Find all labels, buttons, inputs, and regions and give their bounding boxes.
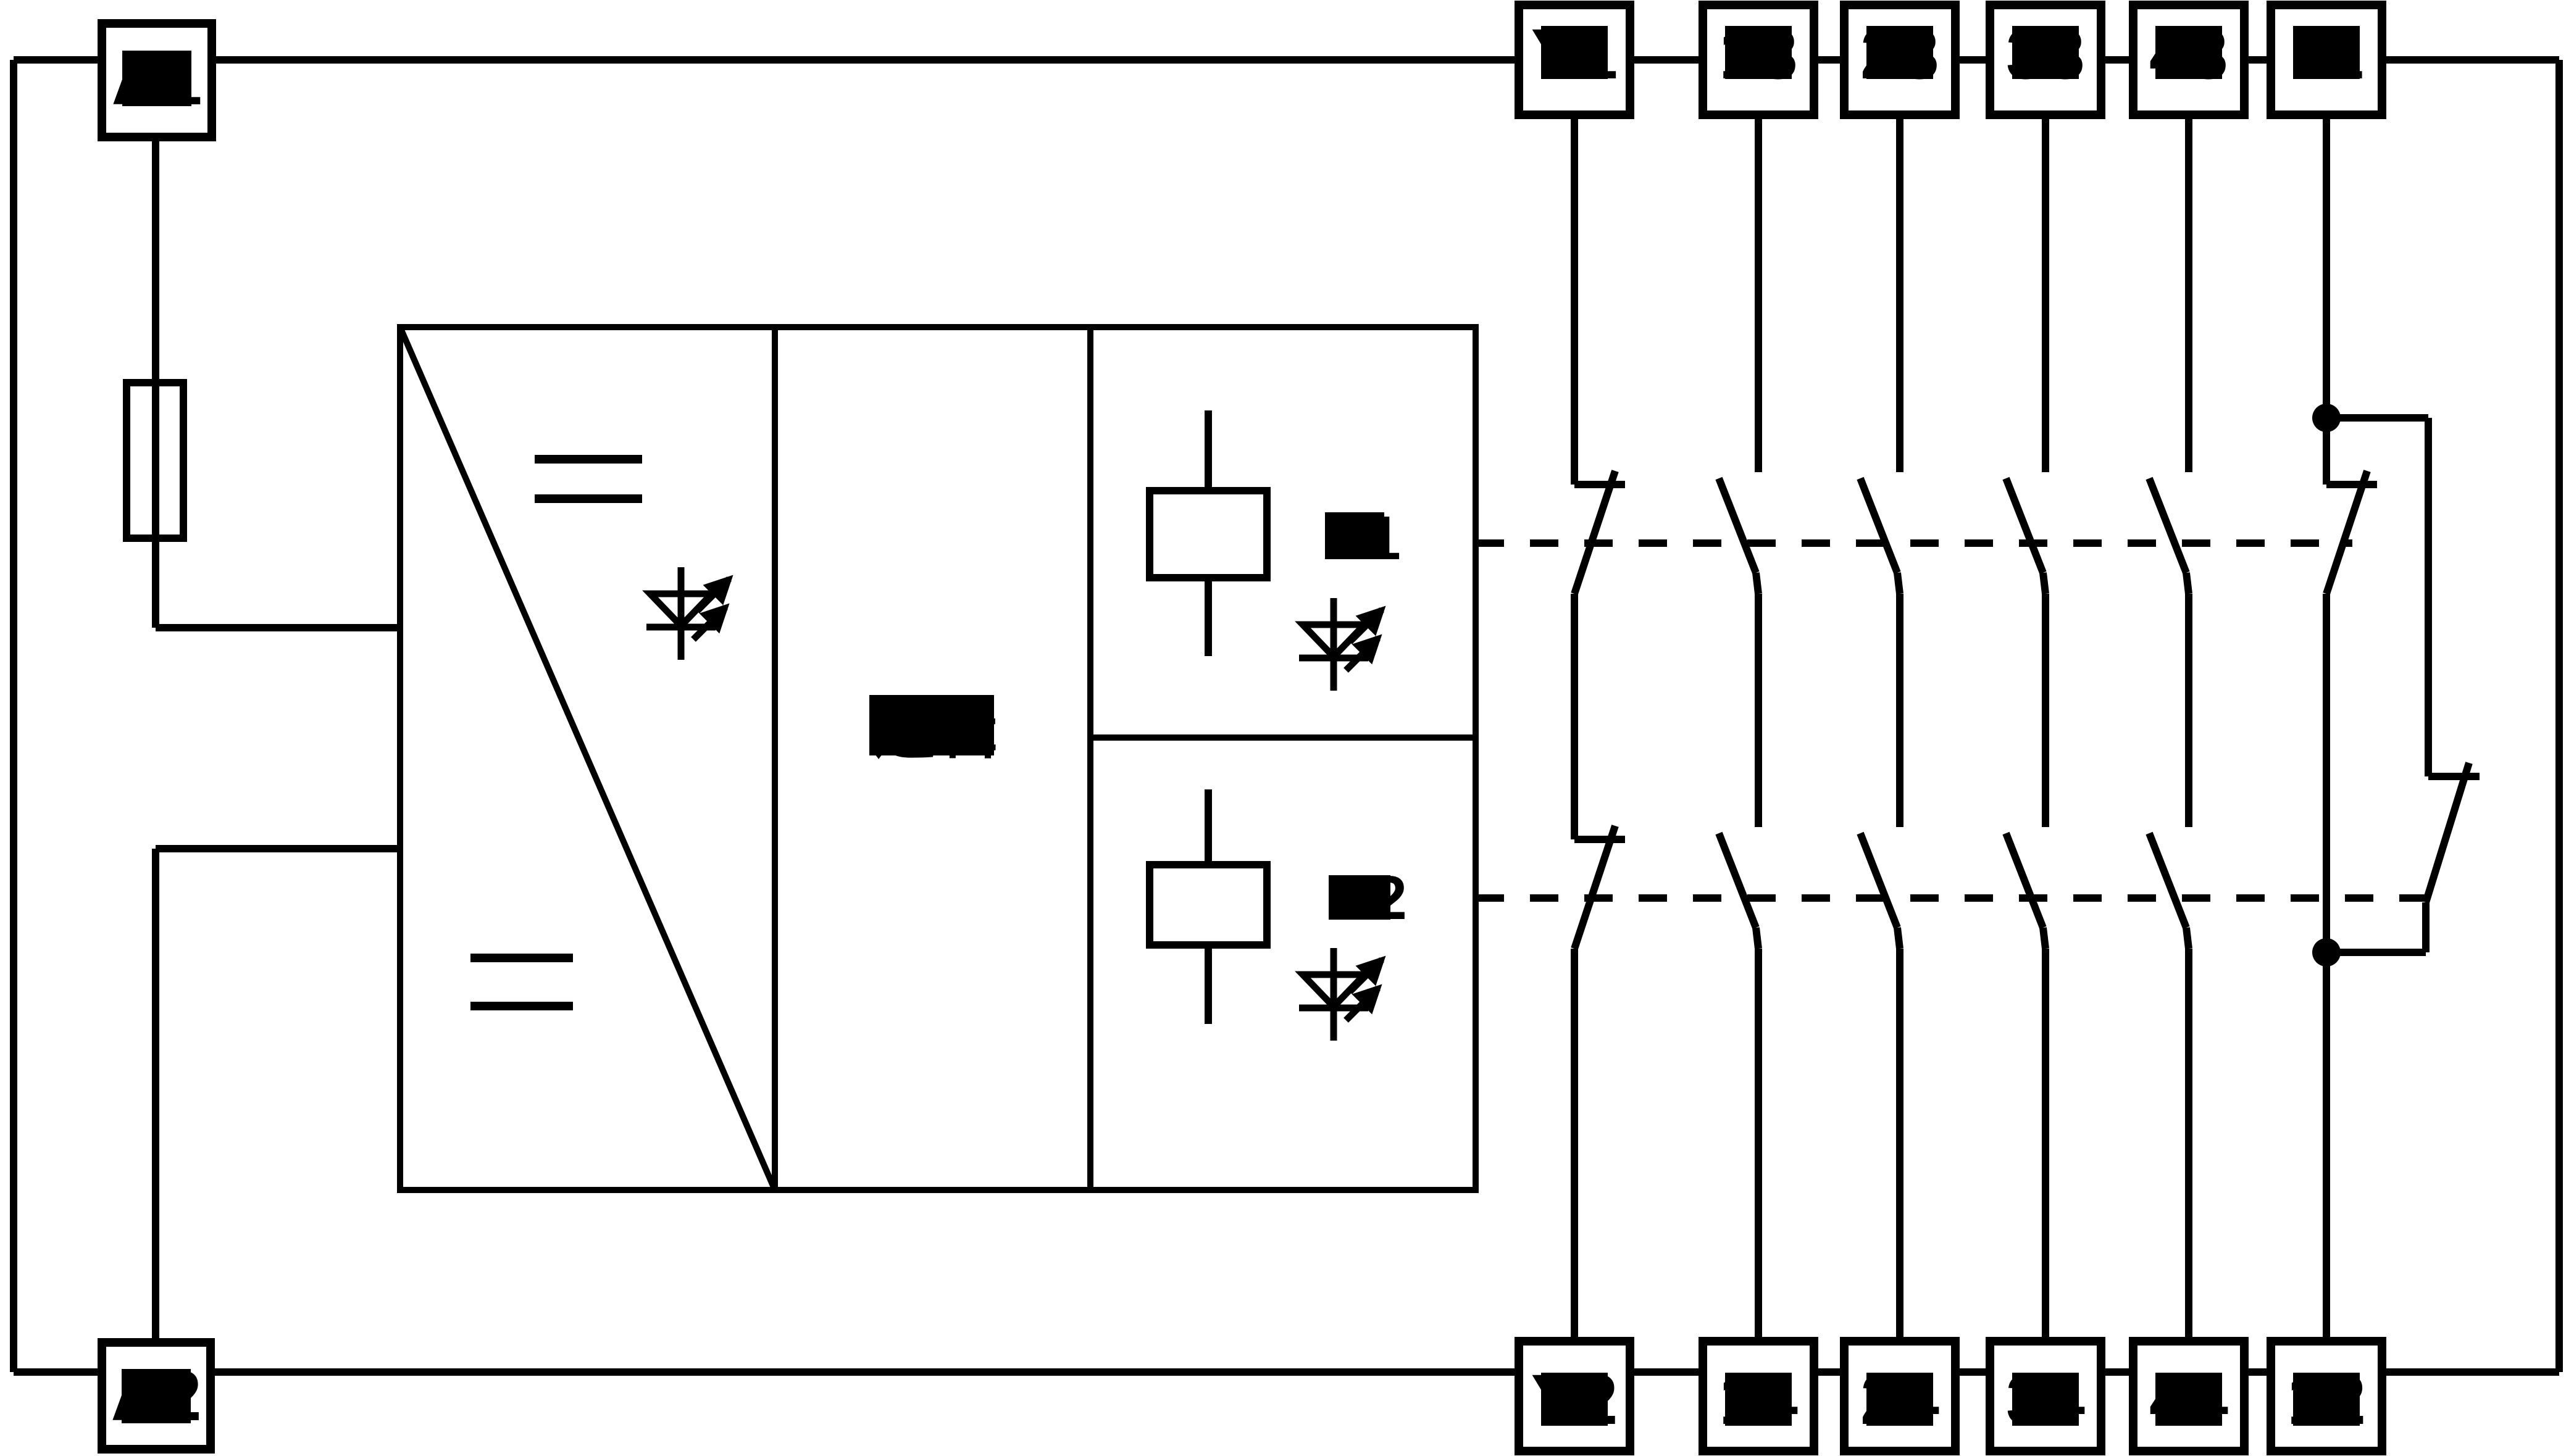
terminal-44-label-cover	[2155, 1373, 2222, 1426]
schematic-stage: A1A2Y11323334311Y21424344412逻辑K1K2	[0, 0, 2574, 1456]
contact-column-6-changeover-line	[2426, 763, 2469, 902]
contact-column-5-line	[2149, 478, 2186, 573]
contact-column-4-line	[2006, 833, 2043, 928]
supply-wiring	[156, 137, 400, 1342]
terminal-y1-label-cover	[1541, 26, 1608, 79]
terminal-14-label-cover	[1725, 1373, 1792, 1426]
terminal-23-label-cover	[1866, 26, 1933, 79]
terminal-a2-label-cover	[122, 1369, 191, 1423]
terminal-33: 33	[1990, 5, 2101, 115]
dc-voltage-symbol-upper	[535, 459, 642, 499]
label-logic-cover	[869, 695, 994, 755]
contact-column-5	[2149, 115, 2189, 1341]
terminal-24-label-cover	[1866, 1373, 1933, 1426]
status-led-supply-icon	[646, 567, 729, 660]
contact-column-1-line	[1574, 471, 1615, 594]
contact-column-4	[2006, 115, 2045, 1341]
terminal-a1-label-cover	[122, 51, 191, 106]
contact-column-6-changeover-line	[2326, 471, 2367, 594]
status-led-k2-icon	[1299, 948, 1382, 1041]
contact-column-2	[1719, 115, 1758, 1341]
contact-column-2-line	[1719, 478, 1756, 573]
contact-column-2-line	[1719, 833, 1756, 928]
contact-column-3	[1860, 115, 1900, 1341]
label-k2-cover	[1329, 875, 1390, 920]
terminal-11-label-cover	[2293, 26, 2360, 79]
contact-column-1-line	[1574, 826, 1615, 949]
terminal-33-label-cover	[2012, 26, 2079, 79]
dc-voltage-symbol-lower	[470, 958, 573, 1006]
terminal-34: 34	[1990, 1341, 2101, 1451]
label-k2: K2	[1328, 863, 1407, 933]
terminal-24: 24	[1844, 1341, 1955, 1451]
relay-k2-coil-box	[1150, 865, 1267, 945]
contact-column-4-line	[2043, 573, 2045, 594]
contact-column-3-line	[1897, 573, 1900, 594]
terminal-43-label-cover	[2155, 26, 2222, 79]
contact-column-4-line	[2006, 478, 2043, 573]
terminal-11: 11	[2271, 5, 2382, 115]
contact-column-1	[1574, 115, 1625, 1341]
terminal-a1: A1	[102, 23, 212, 137]
contact-column-2-line	[1756, 928, 1758, 949]
contact-column-5-line	[2186, 928, 2189, 949]
terminal-13: 13	[1703, 5, 1814, 115]
junction-dot	[2312, 938, 2341, 967]
label-k1-cover	[1325, 512, 1384, 559]
contact-column-3-line	[1860, 478, 1897, 573]
contact-column-3-line	[1897, 928, 1900, 949]
terminal-y1: Y1	[1519, 5, 1630, 115]
terminal-23: 23	[1844, 5, 1955, 115]
relay-k2-coil	[1150, 789, 1267, 1024]
contact-column-5-line	[2186, 573, 2189, 594]
terminal-34-label-cover	[2012, 1373, 2079, 1426]
label-logic: 逻辑	[869, 695, 997, 766]
contact-column-5-line	[2149, 833, 2186, 928]
relay-k1-coil-box	[1150, 491, 1267, 578]
terminal-13-label-cover	[1725, 26, 1792, 79]
relay-k1-coil	[1150, 410, 1267, 656]
terminal-y2: Y2	[1519, 1341, 1630, 1451]
circuit-diagram: A1A2Y11323334311Y21424344412逻辑K1K2	[0, 0, 2574, 1456]
terminal-14: 14	[1703, 1341, 1814, 1451]
module-frame	[14, 60, 2559, 1372]
contact-column-4-line	[2043, 928, 2045, 949]
terminal-a2: A2	[102, 1342, 211, 1449]
status-led-k1-icon	[1299, 598, 1382, 691]
contact-column-6-changeover	[2326, 115, 2480, 1341]
contact-column-3-line	[1860, 833, 1897, 928]
terminal-44: 44	[2133, 1341, 2244, 1451]
terminal-12: 12	[2271, 1341, 2382, 1451]
label-k1: K1	[1322, 504, 1401, 573]
junction-dot	[2312, 404, 2341, 432]
terminal-12-label-cover	[2293, 1373, 2360, 1426]
terminal-43: 43	[2133, 5, 2244, 115]
contact-column-2-line	[1756, 573, 1758, 594]
terminal-y2-label-cover	[1541, 1373, 1608, 1426]
